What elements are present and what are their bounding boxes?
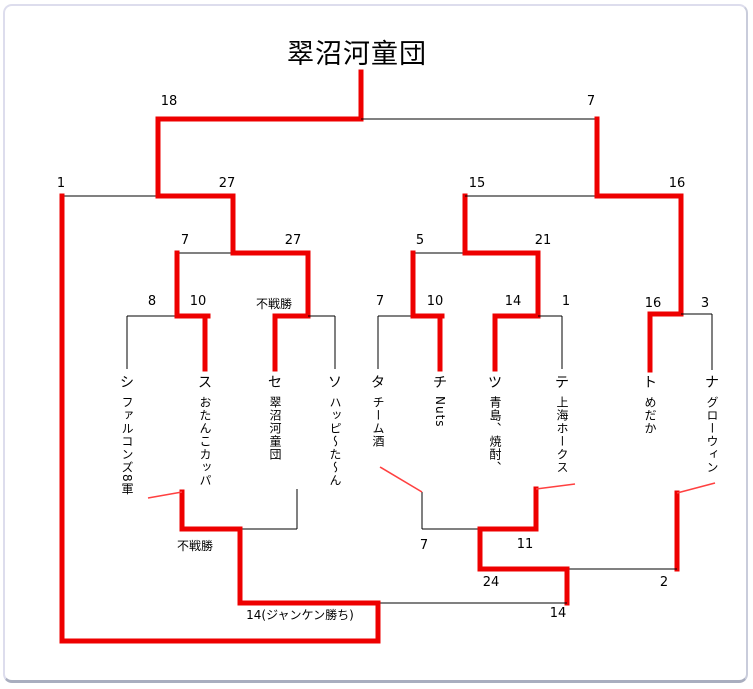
score-label: 24 <box>483 575 500 590</box>
team-seed-letter: テ <box>555 372 569 392</box>
score-label: 不戦勝 <box>177 537 213 554</box>
team-seed-letter: ナ <box>705 372 719 392</box>
team-name: 翠沼河童団 <box>268 396 282 461</box>
score-label: 5 <box>416 233 424 248</box>
team-name: めだか <box>643 396 657 435</box>
team-name: 青島、焼酎、 <box>488 396 502 474</box>
score-label: 10 <box>427 294 444 309</box>
bracket-panel: 翠沼河童団 1871271516727521810不戦勝710141163不戦勝… <box>3 4 748 683</box>
team-name: ハッピ～た～ん <box>328 396 342 487</box>
score-label: 15 <box>469 176 486 191</box>
team-name: 上海ホークス <box>555 396 569 474</box>
drop-connector-line <box>677 483 715 493</box>
score-label: 18 <box>161 94 178 109</box>
team-seed-letter: ツ <box>488 372 502 392</box>
team-name: チーム酒 <box>371 396 385 448</box>
score-label: 不戦勝 <box>256 295 292 312</box>
score-label: 8 <box>148 294 156 309</box>
score-label: 14 <box>550 606 567 621</box>
team-seed-letter: ト <box>643 372 657 392</box>
score-label: 2 <box>660 575 668 590</box>
team-seed-letter: シ <box>120 372 134 392</box>
team-name: おたんこカッパ <box>198 396 212 487</box>
score-label: 11 <box>517 537 534 552</box>
score-label: 7 <box>420 538 428 553</box>
bracket-lines <box>5 6 746 680</box>
bracket-stage: 翠沼河童団 1871271516727521810不戦勝710141163不戦勝… <box>5 6 746 680</box>
score-label: 16 <box>669 176 686 191</box>
team-seed-letter: ソ <box>328 372 342 392</box>
drop-connector-line <box>536 484 575 489</box>
score-label: 1 <box>562 294 570 309</box>
team-seed-letter: チ <box>433 372 447 392</box>
score-label: 14(ジャンケン勝ち) <box>246 606 354 623</box>
score-label: 16 <box>645 296 662 311</box>
score-label: 7 <box>181 233 189 248</box>
score-label: 21 <box>535 233 552 248</box>
team-name: Nuts <box>433 396 447 428</box>
score-label: 27 <box>219 176 236 191</box>
score-label: 10 <box>190 294 207 309</box>
team-seed-letter: ス <box>198 372 212 392</box>
score-label: 7 <box>587 94 595 109</box>
score-label: 3 <box>701 296 709 311</box>
drop-connector-line <box>380 467 422 492</box>
team-name: グローウィン <box>705 396 719 474</box>
team-seed-letter: タ <box>371 372 385 392</box>
team-seed-letter: セ <box>268 372 282 392</box>
team-name: ファルコンズ8軍 <box>120 396 134 496</box>
drop-connector-line <box>148 492 182 498</box>
score-label: 14 <box>505 294 522 309</box>
score-label: 1 <box>57 176 65 191</box>
score-label: 7 <box>376 294 384 309</box>
score-label: 27 <box>285 233 302 248</box>
